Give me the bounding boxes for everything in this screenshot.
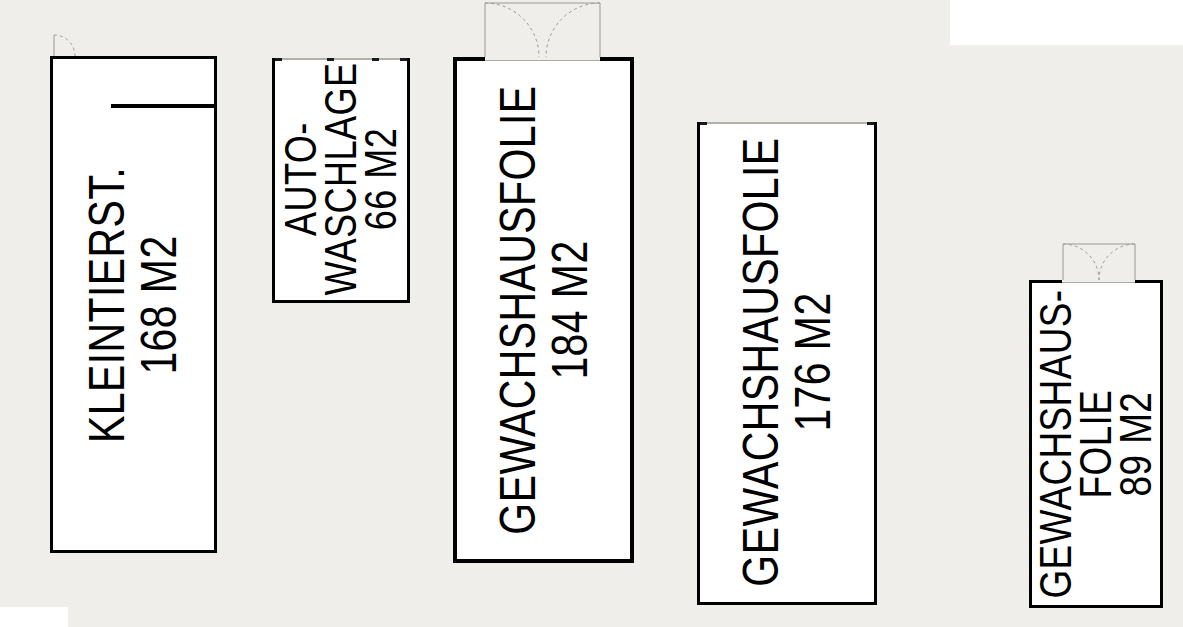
building-label: GEWACHSHAUSFOLIE 184 M2 [492, 85, 596, 534]
wall-tick [275, 58, 282, 61]
building-gewaechshausfolie-184: GEWACHSHAUSFOLIE 184 M2 [453, 57, 634, 563]
building-autowaschanlage: AUTO- WASCHLAGE 66 M2 [272, 58, 410, 303]
building-name-text: GEWACHSHAUSFOLIE [492, 85, 544, 534]
building-name-text: AUTO- [281, 63, 321, 296]
wall-tick [867, 122, 874, 125]
building-label: AUTO- WASCHLAGE 66 M2 [281, 63, 401, 296]
building-area-text: 89 M2 [1116, 289, 1156, 598]
building-label: KLEINTIERST. 168 M2 [82, 166, 186, 442]
paper-white-patch-top-right [950, 0, 1183, 45]
building-name-text: WASCHLAGE [321, 63, 361, 296]
building-label: GEWACHSHAUS- FOLIE 89 M2 [1036, 289, 1156, 598]
thin-wall-line [275, 58, 407, 60]
paper-white-patch-bottom-left [0, 607, 68, 627]
building-name-text: GEWACHSHAUSFOLIE [735, 137, 787, 586]
door-swing-icon [48, 32, 80, 59]
building-kleintierstall: KLEINTIERST. 168 M2 [50, 56, 217, 553]
building-area-text: 66 M2 [361, 63, 401, 296]
wall-tick [700, 122, 707, 125]
wall-tick [372, 58, 379, 61]
building-area-text: 176 M2 [787, 137, 839, 586]
site-plan: KLEINTIERST. 168 M2 AUTO- WASCHLAGE 66 M… [0, 0, 1183, 627]
wall-tick [327, 58, 334, 61]
building-area-text: 184 M2 [544, 85, 596, 534]
double-door-swing-icon [483, 0, 603, 58]
interior-partition-wall [111, 104, 214, 108]
building-label: GEWACHSHAUSFOLIE 176 M2 [735, 137, 839, 586]
building-area-text: 168 M2 [134, 166, 186, 442]
building-gewaechshausfolie-89: GEWACHSHAUS- FOLIE 89 M2 [1029, 280, 1163, 608]
double-door-swing-icon [1060, 242, 1138, 282]
building-gewaechshausfolie-176: GEWACHSHAUSFOLIE 176 M2 [697, 122, 877, 605]
thin-wall-line [700, 122, 874, 124]
wall-tick [400, 58, 407, 61]
building-name-text: KLEINTIERST. [82, 166, 134, 442]
